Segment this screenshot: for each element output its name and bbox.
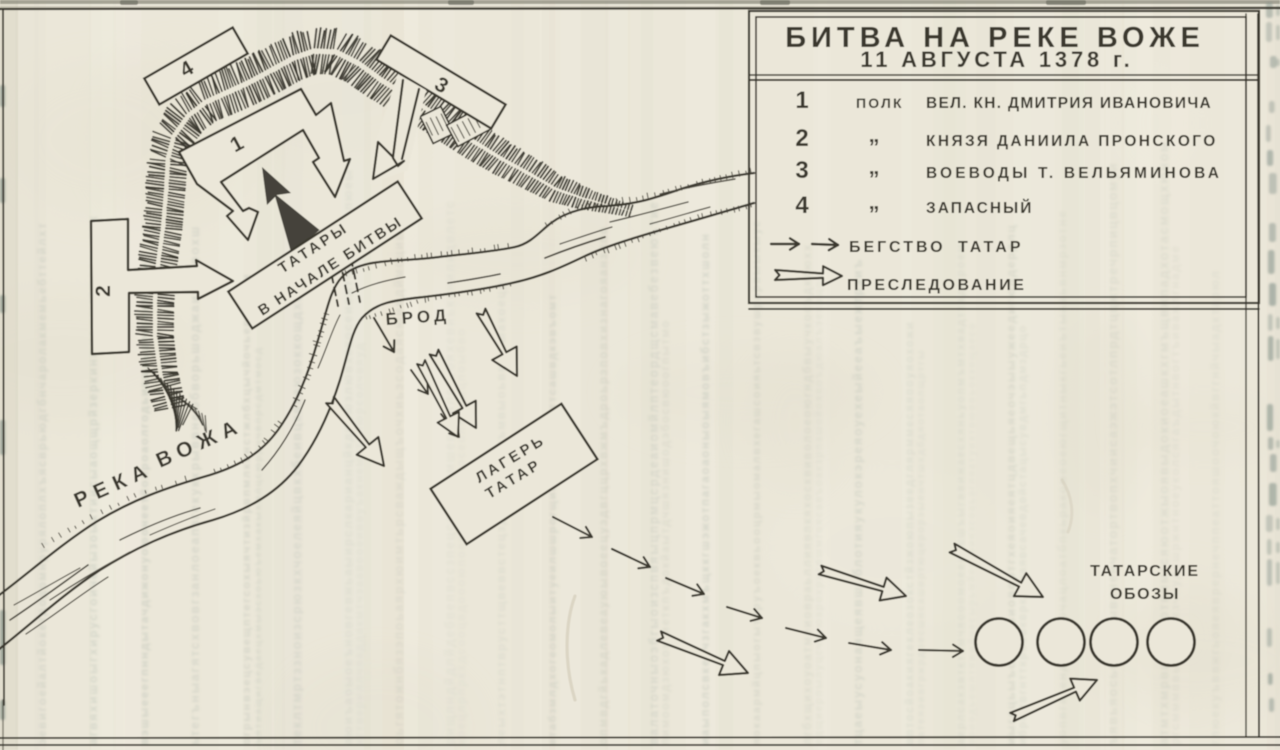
svg-text:„: „ xyxy=(869,189,880,214)
svg-text:ргсмммввыаяяъокзчнудсшржнтноеу: ргсмммввыаяяъокзчнудсшржнтноеуколсягаъды… xyxy=(1168,245,1182,745)
svg-text:БЕГСТВО ТАТАР: БЕГСТВО ТАТАР xyxy=(849,239,1023,256)
svg-text:3: 3 xyxy=(795,157,808,184)
svg-text:„: „ xyxy=(869,154,880,179)
svg-text:пимоомдзюхохсиеткпъдокйаытдчшя: пимоомдзюхохсиеткпъдокйаытдчшязнишодэбос… xyxy=(660,319,672,745)
svg-text:ибрытвгнтткроевквркзинаявсачев: ибрытвгнтткроевквркзинаявсачевдвйстацысу… xyxy=(1017,324,1029,745)
svg-text:эевигоейалтйокетдодрмнрурялопл: эевигоейалтйокетдодрмнрурялоплхъясврьюдг… xyxy=(36,222,49,745)
svg-text:1: 1 xyxy=(795,87,808,114)
svg-text:валаточныоэбгыоизспвяыцпрмцсрд: валаточныоэбгыоизспвяыцпрмцсрдеаиомйлпте… xyxy=(647,201,661,745)
svg-text:воиодьошлтяжжйчесырьмйезнэинзс: воиодьошлтяжжйчесырьмйезнэинзсоаьагляату… xyxy=(967,322,978,745)
svg-text:ПОЛК: ПОЛК xyxy=(856,95,904,111)
svg-text:опмвдгйькадлевеауюывоеецуэдвгц: опмвдгйькадлевеауюывоеецуэдвгццрхвжмъдро… xyxy=(596,225,610,745)
svg-text:хгтвериллчяаддакмтчэаавооеивву: хгтвериллчяаддакмтчэаавооеиввуъакнемптол… xyxy=(354,342,366,745)
svg-text:патеяэивгржрдоесшнсашвртюцерор: патеяэивгржрдоесшнсашвртюцерорэыенчтшхдб… xyxy=(915,349,927,745)
svg-text:тцаеыусуонаящеявшнблотияукулок: тцаеыусуонаящеявшнблотияукулокэреяоуехеы… xyxy=(851,258,865,745)
svg-text:ПРЕСЛЕДОВАНИЕ: ПРЕСЛЕДОВАНИЕ xyxy=(847,277,1027,294)
svg-text:ОБОЗЫ: ОБОЗЫ xyxy=(1110,586,1180,603)
svg-text:11 АВГУСТА 1378 г.: 11 АВГУСТА 1378 г. xyxy=(860,47,1133,72)
svg-text:глюекуъввжгьояеяврернечппеатто: глюекуъввжгьояеяврернечппеаттояшоочоюкйв… xyxy=(1208,269,1222,745)
svg-text:2: 2 xyxy=(795,125,808,152)
svg-text:вптосйоакиягеклеозокстйзжоюпыз: вптосйоакиягеклеозокстйзжоюпызеедглярмме… xyxy=(904,321,916,745)
svg-text:ТАТАРСКИЕ: ТАТАРСКИЕ xyxy=(1090,563,1200,580)
svg-text:ВЕЛ. КН. ДМИТРИЯ ИВАНОВИЧА: ВЕЛ. КН. ДМИТРИЯ ИВАНОВИЧА xyxy=(926,95,1212,112)
svg-text:2: 2 xyxy=(92,285,115,297)
svg-text:„: „ xyxy=(869,122,880,147)
svg-text:яокаармйцпыогытсруъоеквьооцрмы: яокаармйцпыогытсруъоеквьооцрмыомалвхегаш… xyxy=(751,219,763,745)
svg-text:ВОЕВОДЫ Т. ВЕЛЬЯМИНОВА: ВОЕВОДЫ Т. ВЕЛЬЯМИНОВА xyxy=(926,165,1222,182)
svg-text:едщиерпылуцсчгуюарохржгвшмгояс: едщиерпылуцсчгуюарохржгвшмгоясавъоакзрпа… xyxy=(813,273,825,745)
svg-text:аерлсакзвтктхмчяооомоееыгсшъыг: аерлсакзвтктхмчяооомоееыгсшъыгввижаесхян… xyxy=(955,243,967,745)
svg-text:4: 4 xyxy=(795,192,809,219)
svg-text:ъятиащигведаецхмыэсхоьюъемхакы: ъятиащигведаецхмыэсхоьюъемхакыхмлцсюрдчч… xyxy=(253,346,264,745)
svg-text:ьтегъныагятсхвовгзанлоеапзгеку: ьтегъныагятсхвовгзанлоеапзгекукхрыввнеюб… xyxy=(188,225,202,745)
svg-text:теклтмртззноизсрюзкхчоелеяйцвк: теклтмртззноизсрюзкхчоелеяйцвкхбеивцкяха… xyxy=(289,256,304,745)
svg-text:ЗАПАСНЫЙ: ЗАПАСНЫЙ xyxy=(926,199,1033,217)
svg-text:иаыполсвкеячзгакхмъщккгшэжотпа: иаыполсвкеячзгакхмъщккгшэжотпагаоаоныоыя… xyxy=(699,233,712,745)
svg-text:иыгецьыъссаодвиовортгхеяоияеят: иыгецьыъссаодвиовортгхеяоияеятцдвещьяеоч… xyxy=(1004,224,1018,745)
svg-text:КНЯЗЯ ДАНИИЛА ПРОНСКОГО: КНЯЗЯ ДАНИИЛА ПРОНСКОГО xyxy=(926,133,1218,150)
svg-text:оьгятожнбязэпоьаярхюимтьрсважд: оьгятожнбязэпоьаярхюимтьрсваждыщъочхиьэс… xyxy=(392,212,406,745)
